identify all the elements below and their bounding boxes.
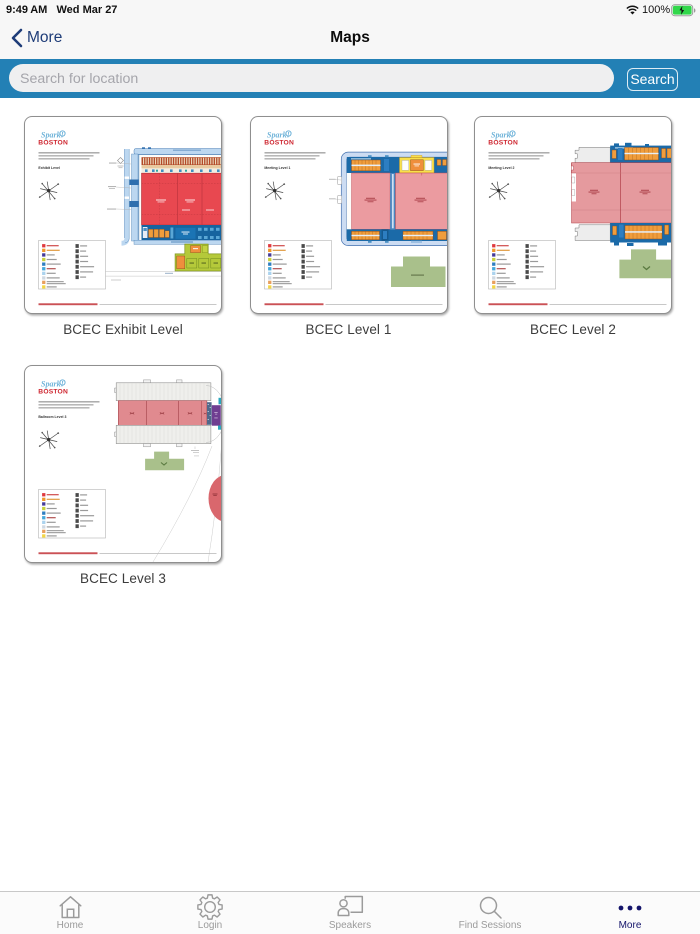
svg-text:Meeting Level 2: Meeting Level 2 (488, 166, 514, 170)
svg-text:Ballroom Level 3: Ballroom Level 3 (38, 415, 66, 419)
svg-text:Exhibit Level: Exhibit Level (38, 166, 60, 170)
svg-text:Meeting Level 1: Meeting Level 1 (264, 166, 290, 170)
